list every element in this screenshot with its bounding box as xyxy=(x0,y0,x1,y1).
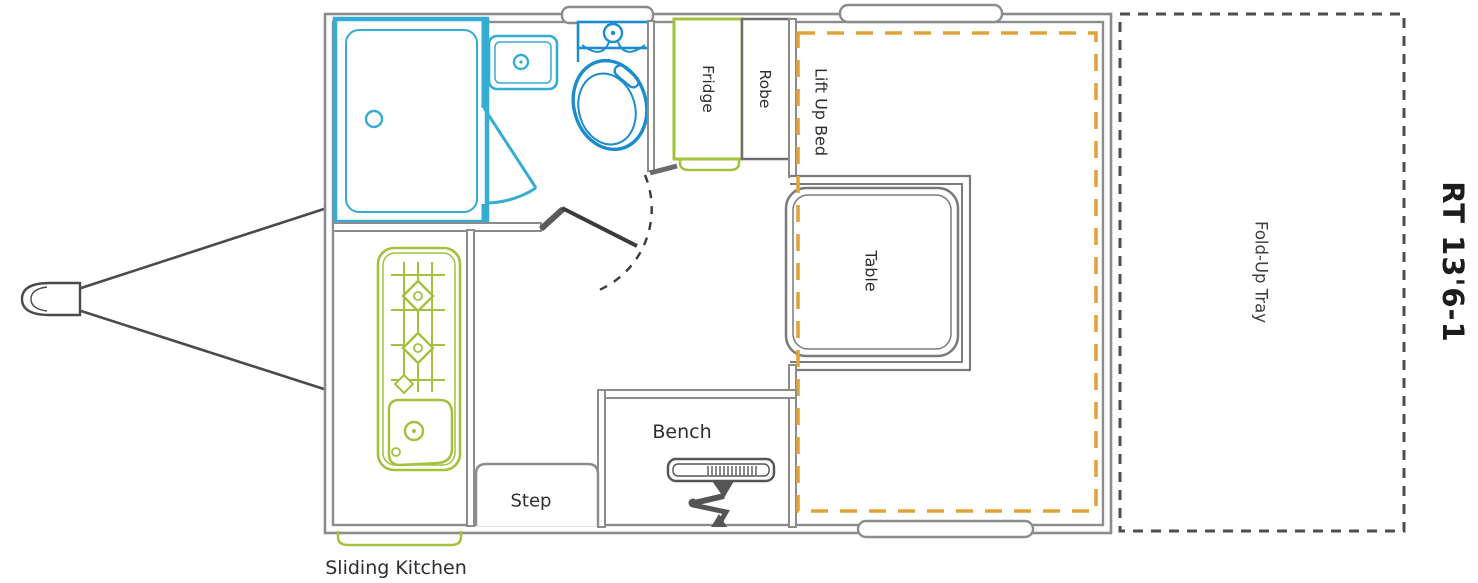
dinette-table: Table xyxy=(786,176,970,370)
sink-drain-dot xyxy=(519,60,522,63)
lift-up-bed-label: Lift Up Bed xyxy=(812,68,831,156)
model-label: RT 13'6-1 xyxy=(1436,181,1470,343)
aframe-top-bar xyxy=(78,208,327,289)
robe: Robe xyxy=(742,19,796,177)
robe-side-wall xyxy=(789,19,796,177)
toilet-side-wall xyxy=(648,21,654,171)
toilet-button-dot xyxy=(611,31,615,35)
step-label: Step xyxy=(511,491,552,512)
tv-bar-outer xyxy=(668,459,774,481)
fold-up-tray-label: Fold-Up Tray xyxy=(1252,221,1271,323)
top-hatch-large xyxy=(840,5,1002,22)
table-label: Table xyxy=(862,249,881,291)
floorplan-page: Fridge Robe Table Lift Up Bed Bench xyxy=(0,0,1478,583)
bathroom-bottom-wall xyxy=(333,223,541,231)
fridge: Fridge xyxy=(674,19,742,170)
vanity-sink xyxy=(489,36,557,89)
sliding-kitchen-unit xyxy=(378,248,460,470)
bench-label: Bench xyxy=(652,421,711,443)
robe-label: Robe xyxy=(756,70,774,109)
aframe-bottom-bar xyxy=(78,310,327,390)
kitchen-counter-edge xyxy=(467,230,474,526)
tow-hitch xyxy=(22,205,330,392)
top-hatch-small xyxy=(562,7,653,23)
sink-basin-outer xyxy=(489,36,557,89)
bench-top-wall xyxy=(598,390,796,398)
kitchen-sink-drain-dot xyxy=(412,429,416,433)
fridge-label: Fridge xyxy=(699,65,717,113)
floorplan-svg: Fridge Robe Table Lift Up Bed Bench xyxy=(0,0,1478,583)
shower-outer xyxy=(335,19,487,222)
sliding-kitchen-label: Sliding Kitchen xyxy=(325,557,467,579)
entry-step: Step xyxy=(476,464,598,526)
fold-up-tray: Fold-Up Tray xyxy=(1120,14,1404,531)
bottom-hatch xyxy=(858,521,1033,537)
